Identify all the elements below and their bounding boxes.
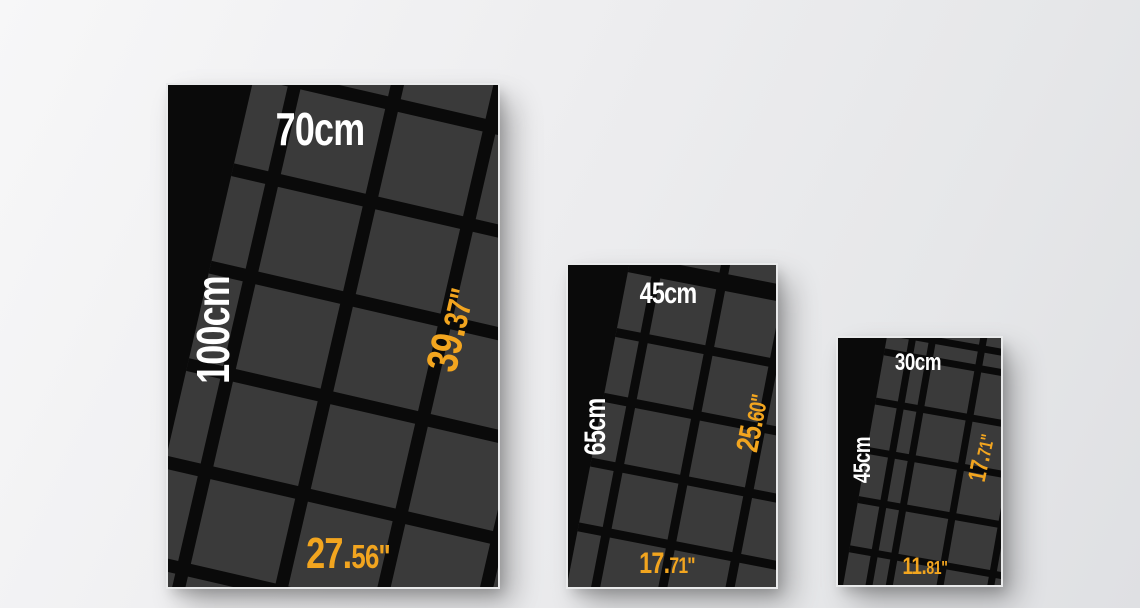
poster-large-height-cm-label: 100cm: [190, 276, 236, 384]
poster-medium-width-cm-label: 45cm: [640, 279, 697, 309]
poster-small-width-inches-label: 11.81": [903, 555, 948, 579]
inches-fraction-digits: 60": [742, 393, 773, 424]
poster-small-height-cm-label: 45cm: [851, 437, 875, 483]
poster-medium: 45cm 65cm 25.60" 17.71": [568, 265, 776, 587]
inches-fraction-digits: 56": [351, 538, 390, 575]
wall-background: 70cm 100cm 39.37" 27.56" 45cm 65cm 25.60…: [0, 0, 1140, 608]
poster-medium-width-inches-label: 17.71": [639, 549, 695, 579]
poster-small: 30cm 45cm 17.71" 11.81": [838, 338, 1001, 585]
inches-fraction-digits: 71": [669, 553, 695, 578]
inches-fraction-digits: 81": [926, 558, 947, 578]
inches-fraction-digits: 71": [973, 433, 998, 459]
poster-small-width-cm-label: 30cm: [895, 351, 941, 375]
inches-main-digits: 11.: [903, 553, 927, 580]
poster-large: 70cm 100cm 39.37" 27.56": [168, 85, 498, 587]
poster-medium-height-cm-label: 65cm: [581, 399, 611, 456]
inches-main-digits: 17.: [639, 547, 669, 580]
inches-main-digits: 27.: [306, 529, 351, 578]
poster-large-width-cm-label: 70cm: [276, 106, 365, 152]
poster-large-width-inches-label: 27.56": [306, 532, 390, 576]
inches-fraction-digits: 37": [436, 286, 481, 332]
